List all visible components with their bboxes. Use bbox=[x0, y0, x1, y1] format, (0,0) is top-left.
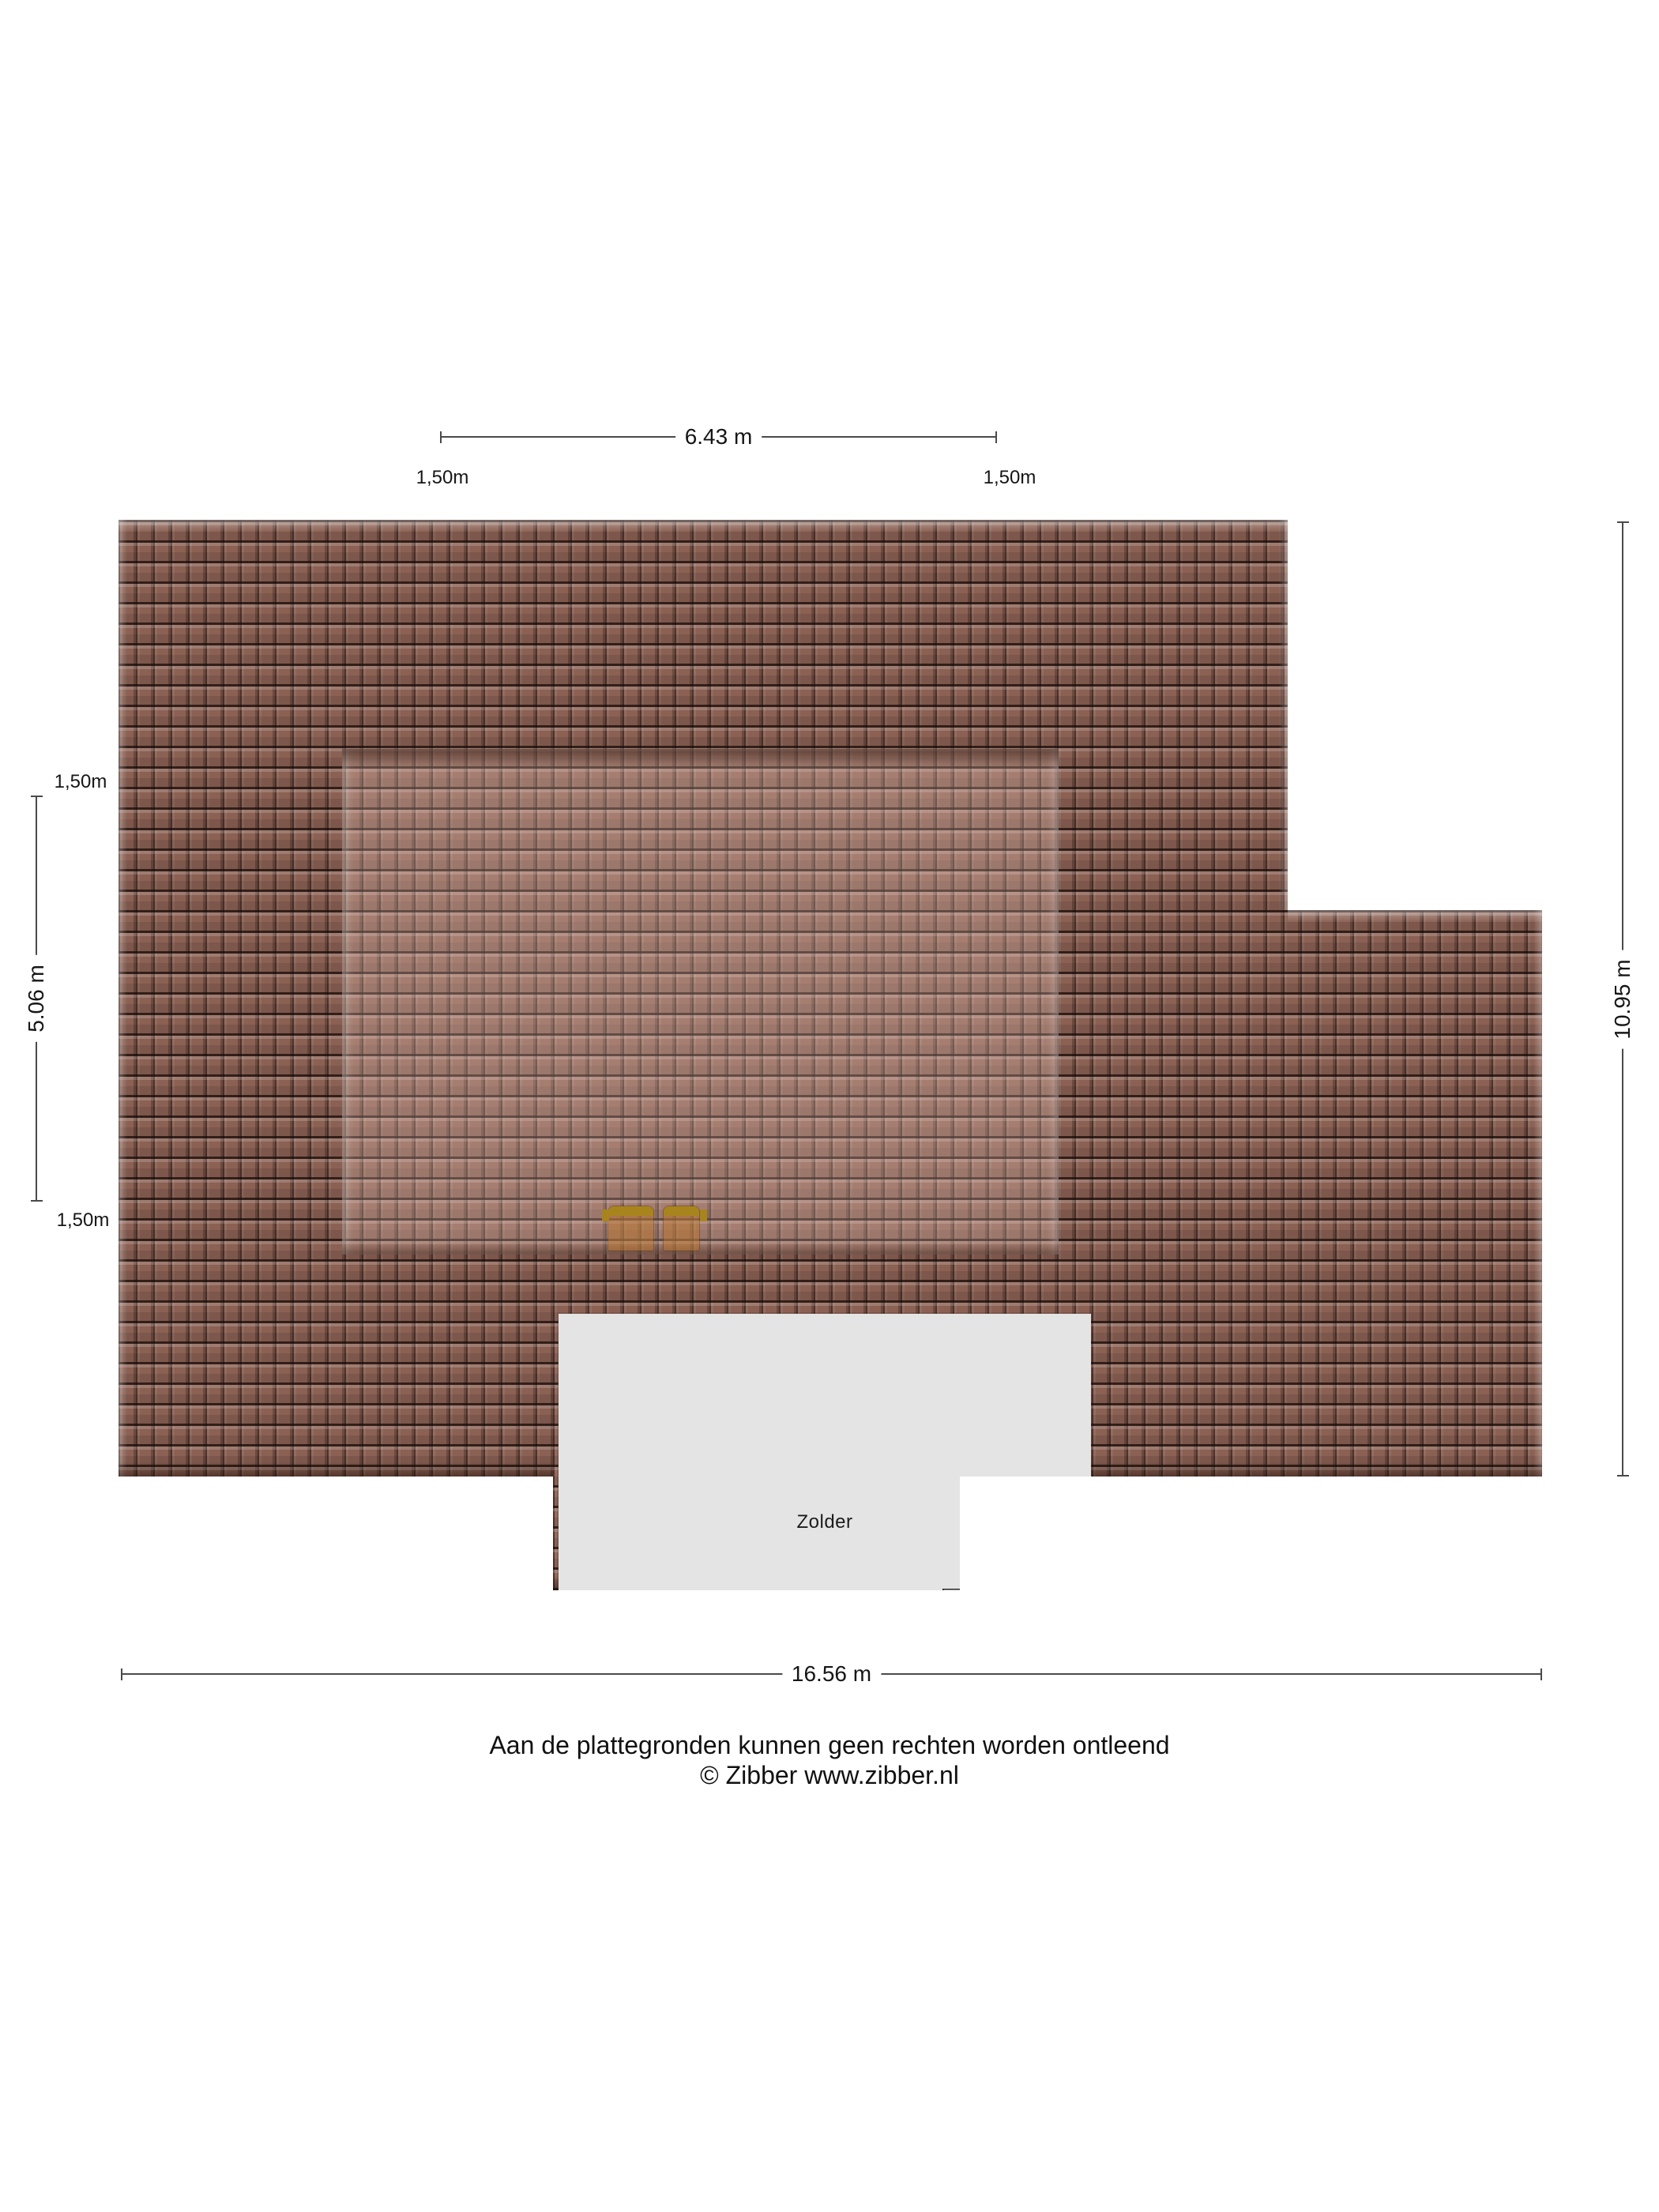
dimension-right-tick-top bbox=[1617, 521, 1629, 523]
room-label: Zolder bbox=[559, 1511, 1091, 1533]
roof-edge-left bbox=[118, 520, 127, 1477]
dimension-bottom-tick-right bbox=[1540, 1668, 1542, 1680]
dimension-left-line: 5.06 m bbox=[36, 796, 37, 1202]
furniture-armrest-left bbox=[602, 1209, 609, 1221]
copyright-text: © Zibber www.zibber.nl bbox=[0, 1760, 1659, 1790]
dimension-top-label: 6.43 m bbox=[675, 424, 762, 450]
dimension-right-label: 10.95 m bbox=[1610, 950, 1635, 1048]
roof-ridge-extension bbox=[1288, 910, 1542, 923]
headroom-label-left-top: 1,50m bbox=[55, 771, 107, 793]
disclaimer-text: Aan de plattegronden kunnen geen rechten… bbox=[0, 1730, 1659, 1760]
dimension-bottom-line: 16.56 m bbox=[121, 1673, 1542, 1675]
stairs-icon bbox=[942, 1589, 1055, 1664]
furniture-armrest-right bbox=[700, 1209, 707, 1221]
furniture-bench-right bbox=[664, 1206, 699, 1251]
dimension-bottom-label: 16.56 m bbox=[782, 1661, 881, 1687]
floorplan-canvas: Zolder 6.43 bbox=[0, 0, 1659, 2212]
dimension-right-tick-bottom bbox=[1617, 1475, 1629, 1477]
roof-outline: Zolder bbox=[118, 520, 1542, 1590]
door-icon bbox=[1050, 1494, 1100, 1546]
headroom-label-top-right: 1,50m bbox=[984, 467, 1036, 489]
furniture-bench-left bbox=[608, 1206, 653, 1251]
dimension-left-label: 5.06 m bbox=[24, 955, 49, 1042]
dimension-right-line: 10.95 m bbox=[1622, 521, 1623, 1477]
roof-edge-right-extension bbox=[1533, 910, 1542, 1477]
dimension-top-line: 6.43 m bbox=[440, 436, 997, 438]
dormer-roof-overlay bbox=[342, 749, 1059, 1255]
roof-ridge-top bbox=[118, 520, 1288, 532]
dimension-top-tick-left bbox=[440, 431, 442, 443]
dimension-left-tick-bottom bbox=[31, 1200, 43, 1202]
dimension-top-tick-right bbox=[995, 431, 997, 443]
roof-edge-right-upper bbox=[1279, 520, 1288, 910]
headroom-label-top-left: 1,50m bbox=[416, 467, 469, 489]
roof-eave-bottom-left bbox=[118, 1461, 553, 1477]
dimension-left-tick-top bbox=[31, 796, 43, 797]
dimension-bottom-tick-left bbox=[121, 1668, 122, 1680]
footer-disclaimer: Aan de plattegronden kunnen geen rechten… bbox=[0, 1730, 1659, 1790]
headroom-label-left-bottom: 1,50m bbox=[57, 1209, 110, 1232]
